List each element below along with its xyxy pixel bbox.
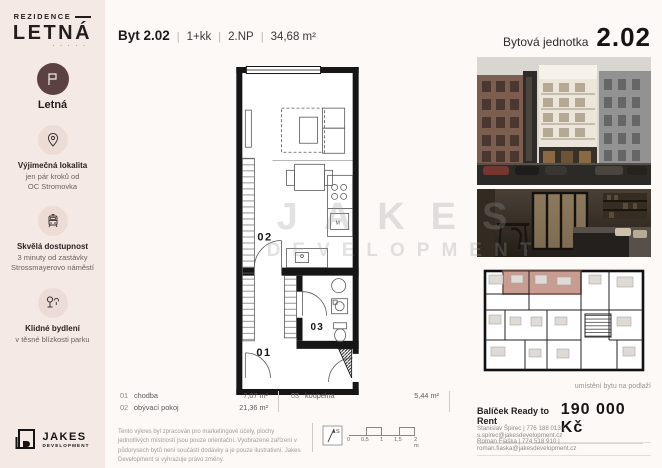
room-label-01: 01 xyxy=(256,347,271,359)
disclaimer-text: Tento výkres byl zpracován pro marketing… xyxy=(118,428,304,465)
brochure-page: REZIDENCE LETNÁ · · · · · Letná Výjimečn… xyxy=(0,0,662,468)
unit-area: 34,68 m² xyxy=(271,31,316,43)
right-panel-title: Bytová jednotka 2.02 xyxy=(477,22,651,53)
feature-location: Výjimečná lokalita jen pár kroků od OC S… xyxy=(0,125,105,192)
unit-layout: 1+kk xyxy=(187,31,212,43)
contact-line-2: Roman Fiaška | 774 518 910 | roman.fiask… xyxy=(477,435,651,456)
room-label-03: 03 xyxy=(311,322,325,333)
unit-number: Byt 2.02 xyxy=(118,28,170,43)
floor-overview-plan xyxy=(477,265,651,377)
logo-dash xyxy=(75,16,91,18)
feature-park: Klidné bydlení v těsné blízkosti parku xyxy=(0,288,105,345)
location-pin-icon xyxy=(38,125,68,155)
flag-icon xyxy=(37,63,69,95)
jakes-logo-icon xyxy=(15,428,37,452)
legend-row-01: 01 chodba 7,07 m² xyxy=(120,391,268,400)
district-label: Letná xyxy=(0,99,105,111)
interior-photo xyxy=(477,189,651,257)
appliance-label: M xyxy=(336,220,340,226)
brand-logo: REZIDENCE LETNÁ · · · · · xyxy=(0,12,105,49)
logo-line2: LETNÁ xyxy=(0,22,105,45)
legend-row-02: 02 obývací pokoj 21,36 m² xyxy=(120,403,268,412)
compass-north-label: S xyxy=(336,429,340,435)
park-icon xyxy=(38,288,68,318)
unit-floor: 2.NP xyxy=(228,31,254,43)
room-legend: 01 chodba 7,07 m² 02 obývací pokoj 21,36… xyxy=(120,391,450,412)
unit-number-large: 2.02 xyxy=(596,22,651,53)
feature-transport: Skvělá dostupnost 3 minuty od zastávky S… xyxy=(0,206,105,273)
compass: S xyxy=(312,423,345,452)
floor-plan: 02 01 03 M xyxy=(232,63,363,399)
building-photo xyxy=(477,57,651,185)
unit-header: Byt 2.02 | 1+kk | 2.NP | 34,68 m² xyxy=(118,28,316,43)
jakes-development-logo: JAKES DEVELOPMENT xyxy=(0,428,105,452)
scale-bar: 0 0,5 1 1,5 2 m xyxy=(347,427,421,443)
sidebar: REZIDENCE LETNÁ · · · · · Letná Výjimečn… xyxy=(0,0,105,468)
floor-location-caption: umístění bytu na podlaží xyxy=(477,383,651,390)
logo-line1: REZIDENCE xyxy=(14,12,72,21)
tram-icon xyxy=(38,206,68,236)
legend-row-03: 03 koupelna 5,44 m² xyxy=(291,391,439,400)
room-label-02: 02 xyxy=(257,232,272,244)
